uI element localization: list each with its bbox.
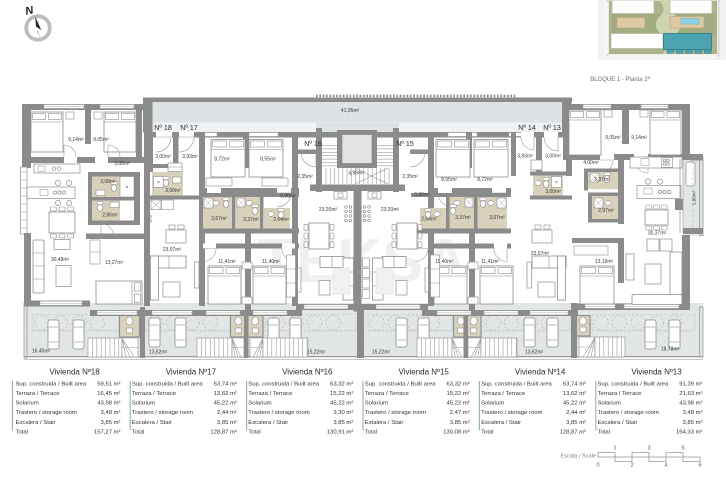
svg-text:3,48 m²: 3,48 m² [101, 410, 121, 416]
svg-text:Terraza / Terrace: Terraza / Terrace [598, 391, 643, 397]
svg-text:164,33 m²: 164,33 m² [676, 429, 703, 435]
svg-text:91,39 m²: 91,39 m² [679, 381, 702, 387]
svg-text:2,47 m²: 2,47 m² [450, 410, 470, 416]
svg-text:2,35m²: 2,35m² [297, 174, 313, 180]
svg-text:2,44 m²: 2,44 m² [217, 410, 237, 416]
svg-text:43,98 m²: 43,98 m² [679, 401, 702, 407]
svg-text:6: 6 [698, 463, 701, 469]
svg-text:0: 0 [596, 463, 599, 469]
svg-text:3,08m²: 3,08m² [100, 179, 116, 185]
svg-text:2,97m²: 2,97m² [598, 208, 614, 214]
svg-text:3,85 m²: 3,85 m² [683, 420, 703, 426]
svg-text:4: 4 [664, 463, 667, 469]
svg-text:Escalera / Stair: Escalera / Stair [16, 420, 56, 426]
svg-text:2,86m²: 2,86m² [102, 213, 118, 219]
svg-text:0,90m²: 0,90m² [280, 194, 296, 200]
svg-text:3,85 m²: 3,85 m² [566, 420, 586, 426]
svg-text:2,64m²: 2,64m² [273, 217, 289, 223]
svg-text:9,05m²: 9,05m² [605, 135, 621, 141]
svg-text:Total: Total [365, 429, 377, 435]
svg-text:3,93m²: 3,93m² [182, 154, 198, 160]
svg-text:Solarium: Solarium [598, 401, 621, 407]
svg-text:3,85 m²: 3,85 m² [217, 420, 237, 426]
svg-text:30,48m²: 30,48m² [51, 257, 70, 263]
svg-text:2,85m²: 2,85m² [692, 190, 697, 205]
svg-text:16,45m²: 16,45m² [32, 349, 51, 355]
svg-text:13,62 m²: 13,62 m² [563, 391, 586, 397]
svg-text:Trastero / storage room: Trastero / storage room [481, 410, 542, 416]
svg-text:11,41m²: 11,41m² [218, 259, 236, 265]
svg-text:15,22 m²: 15,22 m² [446, 391, 469, 397]
svg-text:23,07m²: 23,07m² [531, 251, 550, 257]
svg-text:21,63 m²: 21,63 m² [679, 391, 702, 397]
svg-text:45,22 m²: 45,22 m² [330, 401, 353, 407]
svg-text:Total: Total [132, 429, 144, 435]
svg-text:59,51 m²: 59,51 m² [97, 381, 120, 387]
svg-text:13,62 m²: 13,62 m² [214, 391, 237, 397]
svg-text:30,37m²: 30,37m² [648, 231, 667, 237]
svg-text:1: 1 [613, 446, 616, 452]
svg-text:2,64m²: 2,64m² [421, 217, 437, 223]
svg-text:23,20m²: 23,20m² [319, 207, 338, 213]
svg-text:41,05m²: 41,05m² [341, 108, 360, 114]
svg-text:15,22m²: 15,22m² [307, 350, 326, 356]
svg-text:Sup. construida / Built area: Sup. construida / Built area [248, 381, 319, 387]
svg-text:9,14m²: 9,14m² [68, 137, 84, 143]
svg-text:130,91 m²: 130,91 m² [327, 429, 354, 435]
svg-text:Solarium: Solarium [16, 401, 39, 407]
svg-text:Nº 18: Nº 18 [154, 124, 172, 132]
svg-text:3,67m²: 3,67m² [489, 215, 505, 221]
svg-text:BLOQUE 1 - Planta 2ª: BLOQUE 1 - Planta 2ª [590, 76, 650, 83]
svg-text:Trastero / storage room: Trastero / storage room [16, 410, 77, 416]
svg-text:4,99m²: 4,99m² [348, 171, 364, 177]
svg-text:Terraza / Terrace: Terraza / Terrace [132, 391, 177, 397]
svg-text:Escalera / Stair: Escalera / Stair [248, 420, 288, 426]
svg-text:Nº 17: Nº 17 [180, 124, 198, 132]
svg-text:16,45 m²: 16,45 m² [97, 391, 120, 397]
svg-text:Escalera / Stair: Escalera / Stair [132, 420, 172, 426]
svg-text:Vivienda Nº17: Vivienda Nº17 [166, 368, 217, 377]
svg-text:Trastero / storage room: Trastero / storage room [248, 410, 309, 416]
svg-text:2: 2 [630, 463, 633, 469]
svg-text:63,32 m²: 63,32 m² [446, 381, 469, 387]
svg-text:Nº 15: Nº 15 [396, 140, 414, 148]
svg-text:Terraza / Terrace: Terraza / Terrace [16, 391, 61, 397]
svg-text:9,14m²: 9,14m² [631, 135, 647, 141]
svg-text:3,00m²: 3,00m² [545, 154, 561, 160]
svg-text:4,00m²: 4,00m² [583, 160, 599, 166]
svg-text:Nº 16: Nº 16 [304, 140, 322, 148]
svg-text:Terraza / Terrace: Terraza / Terrace [365, 391, 410, 397]
svg-text:8,55m²: 8,55m² [260, 157, 276, 163]
svg-text:45,22 m²: 45,22 m² [446, 401, 469, 407]
svg-text:Trastero / storage room: Trastero / storage room [598, 410, 659, 416]
svg-text:130,08 m²: 130,08 m² [443, 429, 470, 435]
svg-text:15,22 m²: 15,22 m² [330, 391, 353, 397]
svg-text:3,48 m²: 3,48 m² [683, 410, 703, 416]
svg-text:11,40m²: 11,40m² [262, 259, 280, 265]
svg-text:45,22 m²: 45,22 m² [214, 401, 237, 407]
svg-text:13,27m²: 13,27m² [105, 260, 124, 266]
svg-text:63,32 m²: 63,32 m² [330, 381, 353, 387]
svg-text:11,40m²: 11,40m² [435, 259, 453, 265]
svg-text:Total: Total [248, 429, 260, 435]
svg-text:Sup. construida / Built area: Sup. construida / Built area [365, 381, 436, 387]
svg-text:3,00m²: 3,00m² [545, 189, 561, 195]
svg-text:Total: Total [481, 429, 493, 435]
svg-text:Terraza / Terrace: Terraza / Terrace [248, 391, 293, 397]
svg-text:13,19m²: 13,19m² [595, 259, 614, 265]
svg-text:Vivienda Nº16: Vivienda Nº16 [282, 368, 333, 377]
svg-text:13,62m²: 13,62m² [525, 350, 544, 356]
svg-text:15,22m²: 15,22m² [372, 350, 391, 356]
svg-text:63,74 m²: 63,74 m² [214, 381, 237, 387]
svg-text:Vivienda Nº14: Vivienda Nº14 [515, 368, 566, 377]
svg-text:3,00m²: 3,00m² [165, 188, 181, 194]
svg-text:Sup. construida / Built area: Sup. construida / Built area [598, 381, 669, 387]
svg-text:11,41m²: 11,41m² [481, 259, 499, 265]
svg-text:9,05m²: 9,05m² [93, 137, 109, 143]
svg-text:3: 3 [647, 446, 650, 452]
svg-text:3,30 m²: 3,30 m² [333, 410, 353, 416]
svg-text:Escala / Scale: Escala / Scale [561, 454, 596, 460]
svg-text:13,62m²: 13,62m² [149, 350, 168, 356]
svg-text:Sup. construida / Built area: Sup. construida / Built area [132, 381, 203, 387]
svg-text:23,07m²: 23,07m² [163, 247, 182, 253]
svg-text:3,67m²: 3,67m² [211, 216, 227, 222]
svg-text:128,87 m²: 128,87 m² [560, 429, 587, 435]
svg-text:Vivienda Nº15: Vivienda Nº15 [399, 368, 450, 377]
svg-text:Solarium: Solarium [365, 401, 388, 407]
svg-text:3,37m²: 3,37m² [243, 217, 259, 223]
svg-text:Solarium: Solarium [481, 401, 504, 407]
svg-text:Vivienda Nº18: Vivienda Nº18 [49, 368, 100, 377]
svg-text:157,27 m²: 157,27 m² [94, 429, 121, 435]
svg-text:3,08m²: 3,08m² [114, 161, 130, 167]
svg-text:Escalera / Stair: Escalera / Stair [481, 420, 521, 426]
svg-text:3,85 m²: 3,85 m² [333, 420, 353, 426]
svg-text:2,44 m²: 2,44 m² [566, 410, 586, 416]
svg-text:5: 5 [681, 446, 684, 452]
svg-text:43,98 m²: 43,98 m² [97, 401, 120, 407]
svg-text:18,78m²: 18,78m² [661, 347, 680, 353]
svg-text:128,87 m²: 128,87 m² [210, 429, 237, 435]
svg-text:0,90m²: 0,90m² [414, 192, 430, 198]
svg-text:Nº 14: Nº 14 [518, 124, 536, 132]
svg-text:Estalera / Stair: Estalera / Stair [365, 420, 404, 426]
svg-text:3,37m²: 3,37m² [455, 215, 471, 221]
svg-text:23,20m²: 23,20m² [381, 207, 400, 213]
svg-text:Trastero / storage room: Trastero / storage room [132, 410, 193, 416]
svg-text:Total: Total [16, 429, 28, 435]
svg-text:3,85 m²: 3,85 m² [101, 420, 121, 426]
svg-text:3,37m²: 3,37m² [594, 177, 610, 183]
svg-text:Sup. construida / Built area: Sup. construida / Built area [481, 381, 552, 387]
svg-text:Nº 13: Nº 13 [543, 124, 561, 132]
svg-text:3,00m²: 3,00m² [155, 154, 171, 160]
svg-text:Vivienda Nº13: Vivienda Nº13 [631, 368, 682, 377]
svg-text:Escalera / Stair: Escalera / Stair [598, 420, 638, 426]
svg-text:45,22 m²: 45,22 m² [563, 401, 586, 407]
svg-text:Trastero / storage room: Trastero / storage room [365, 410, 426, 416]
svg-text:Sup. construida / Built area: Sup. construida / Built area [16, 381, 87, 387]
svg-text:3,85 m²: 3,85 m² [450, 420, 470, 426]
svg-text:8,72m²: 8,72m² [477, 177, 493, 183]
svg-text:8,55m²: 8,55m² [441, 177, 457, 183]
svg-text:2,35m²: 2,35m² [402, 174, 418, 180]
svg-text:63,74 m²: 63,74 m² [563, 381, 586, 387]
svg-text:Total: Total [598, 429, 610, 435]
svg-text:8,72m²: 8,72m² [214, 157, 230, 163]
svg-text:Solarium: Solarium [132, 401, 155, 407]
svg-text:Solarium: Solarium [248, 401, 271, 407]
svg-text:3,93m²: 3,93m² [517, 154, 533, 160]
svg-text:Terraza / Terrace: Terraza / Terrace [481, 391, 526, 397]
